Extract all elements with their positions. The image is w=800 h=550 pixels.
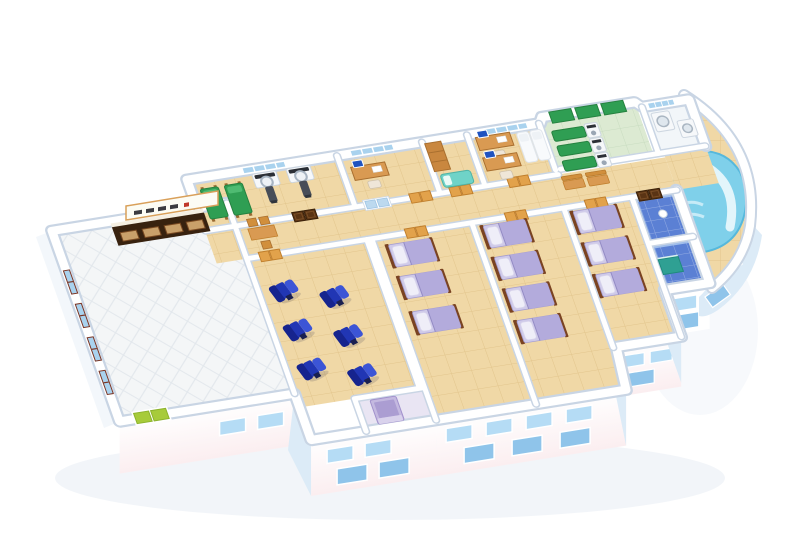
floorplan-stage [0, 0, 800, 550]
floorplan-rendering [0, 0, 800, 550]
corridor-bench [561, 174, 586, 190]
floor-plan [36, 90, 783, 468]
corridor-bench [585, 170, 610, 186]
